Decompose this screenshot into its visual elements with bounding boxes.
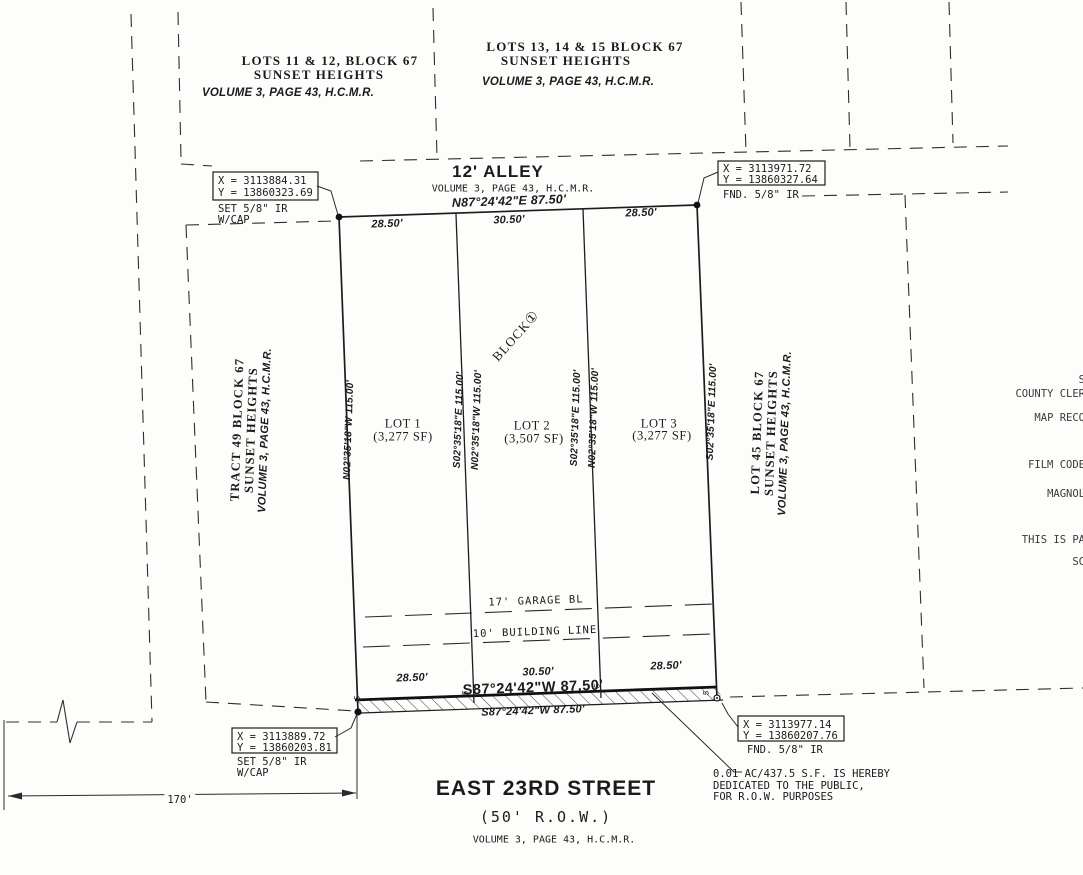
neighbor-label-top-right-line2: SUNSET HEIGHTS bbox=[501, 53, 631, 69]
monument-top-left-x: X = 3113884.31 bbox=[218, 175, 307, 187]
alley-title: 12' ALLEY bbox=[452, 162, 544, 182]
street-row: (50' R.O.W.) bbox=[480, 808, 612, 826]
monument-bottom-left-y: Y = 13860203.81 bbox=[237, 742, 332, 754]
street-name: EAST 23RD STREET bbox=[436, 777, 656, 801]
monument-bottom-left-desc2: W/CAP bbox=[237, 767, 269, 779]
margin-text-4: FILM CODE bbox=[1028, 459, 1083, 471]
lot1-area: (3,277 SF) bbox=[373, 430, 432, 445]
monument-top-right-y: Y = 13860327.64 bbox=[723, 174, 818, 186]
margin-text-2: COUNTY CLER bbox=[1015, 388, 1083, 400]
south-segment-2: 30.50' bbox=[522, 665, 554, 678]
alley-segment-3: 28.50' bbox=[625, 206, 657, 219]
street-volume: VOLUME 3, PAGE 43, H.C.M.R. bbox=[473, 835, 636, 846]
margin-text-6: THIS IS PA bbox=[1022, 534, 1083, 546]
monument-top-left-y: Y = 13860323.69 bbox=[218, 187, 313, 199]
dimension-170-label: 170' bbox=[164, 794, 195, 806]
south-segment-1: 28.50' bbox=[396, 671, 428, 684]
adjoining-tract-west-label: TRACT 49 BLOCK 67 SUNSET HEIGHTS VOLUME … bbox=[227, 347, 275, 513]
adjoining-lot-east-label: LOT 45 BLOCK 67 SUNSET HEIGHTS VOLUME 3,… bbox=[747, 350, 795, 516]
monument-bottom-right-desc: FND. 5/8" IR bbox=[747, 744, 823, 756]
margin-text-7: SC bbox=[1072, 556, 1083, 568]
adjoining-parcel-dashed-lines bbox=[6, 2, 1083, 722]
dedication-note: 0.01 AC/437.5 S.F. IS HEREBY DEDICATED T… bbox=[713, 769, 890, 804]
margin-text-5: MAGNOL bbox=[1047, 488, 1083, 500]
lot3-area: (3,277 SF) bbox=[632, 429, 691, 444]
monument-bottom-right-y: Y = 13860207.76 bbox=[743, 730, 838, 742]
lot2-area: (3,507 SF) bbox=[504, 432, 563, 447]
dedication-line1: 0.01 AC/437.5 S.F. IS HEREBY bbox=[713, 769, 890, 781]
neighbor-label-top-right-volume: VOLUME 3, PAGE 43, H.C.M.R. bbox=[482, 76, 654, 88]
alley-segment-1: 28.50' bbox=[371, 217, 403, 230]
corner-monuments bbox=[336, 202, 720, 716]
neighbor-label-top-left-volume: VOLUME 3, PAGE 43, H.C.M.R. bbox=[202, 87, 374, 99]
alley-segment-2: 30.50' bbox=[493, 213, 525, 226]
south-segment-3: 28.50' bbox=[650, 659, 682, 672]
monument-top-right-desc: FND. 5/8" IR bbox=[723, 189, 799, 201]
line-break-symbol bbox=[57, 700, 77, 743]
dedication-line3: FOR R.O.W. PURPOSES bbox=[713, 792, 890, 804]
margin-text-1: S bbox=[1079, 374, 1083, 386]
margin-text-3: MAP RECO bbox=[1034, 412, 1083, 424]
neighbor-label-top-left-line2: SUNSET HEIGHTS bbox=[254, 67, 384, 83]
monument-top-left-desc2: W/CAP bbox=[218, 214, 250, 226]
plat-sheet: LOTS 11 & 12, BLOCK 67 SUNSET HEIGHTS VO… bbox=[0, 0, 1083, 875]
